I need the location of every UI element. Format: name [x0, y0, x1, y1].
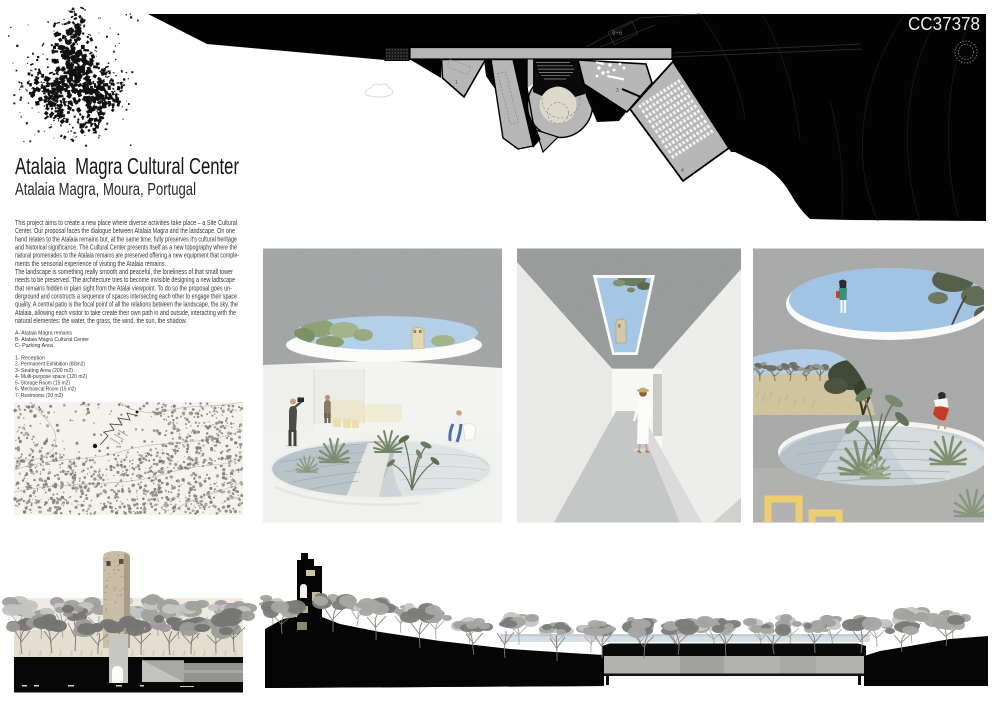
svg-text:2: 2	[501, 132, 504, 138]
svg-text:natural elementes: the water,: natural elementes: the water, the grass,…	[15, 318, 187, 325]
svg-text:Atalaia Magra, Moura, Portugal: Atalaia Magra, Moura, Portugal	[15, 179, 196, 199]
svg-text:that remains hidden in plain s: that remains hidden in plain sight from …	[15, 285, 233, 292]
svg-text:3: 3	[616, 88, 619, 94]
svg-text:6- Mechanical Room (15 m2): 6- Mechanical Room (15 m2)	[15, 387, 76, 393]
svg-text:This project aims to create a: This project aims to create a new place …	[15, 220, 237, 227]
svg-text:The landscape is something rea: The landscape is something really smooth…	[15, 269, 234, 276]
svg-text:ments the sensorial experience: ments the sensorial experience of visiti…	[15, 261, 166, 268]
svg-text:5- Storage Room (15 m2): 5- Storage Room (15 m2)	[15, 381, 70, 387]
svg-text:natural promenades to the Atal: natural promenades to the Atalaia remain…	[15, 253, 240, 260]
svg-text:hand relates to the Atalaia re: hand relates to the Atalaia remains but,…	[15, 236, 237, 243]
svg-text:4- Multi-purpose space (120 m2: 4- Multi-purpose space (120 m2)	[15, 374, 87, 380]
svg-text:1: 1	[455, 80, 458, 86]
svg-text:Atalaia Magra Cultural Center: Atalaia Magra Cultural Center	[15, 153, 239, 179]
svg-text:2- Permanent Exhibition (80m2): 2- Permanent Exhibition (80m2)	[15, 362, 85, 368]
svg-text:Atalaia, allowing each visitor: Atalaia, allowing each visitor to take c…	[15, 310, 236, 317]
svg-text:1- Reception: 1- Reception	[15, 356, 45, 362]
svg-text:quality. A central patio is th: quality. A central patio is the focal po…	[15, 302, 238, 309]
svg-text:and historical significance. T: and historical significance. The Cultura…	[15, 245, 237, 252]
svg-text:A- Atalaia Magra remains: A- Atalaia Magra remains	[15, 331, 72, 337]
svg-text:B- Atalaia Magra Cultural Cent: B- Atalaia Magra Cultural Center	[15, 337, 89, 343]
svg-text:CC37378: CC37378	[908, 13, 980, 34]
svg-text:needs to be preserved. The arc: needs to be preserved. The architecture …	[15, 277, 235, 284]
svg-text:3- Seating Area (200 m2): 3- Seating Area (200 m2)	[15, 368, 73, 374]
svg-text:Center. Our proposal faces the: Center. Our proposal faces the dialogue …	[15, 228, 235, 235]
svg-text:7- Restrooms (20 m2): 7- Restrooms (20 m2)	[15, 393, 63, 399]
svg-text:C- Parking Area: C- Parking Area	[15, 343, 54, 349]
svg-text:4: 4	[681, 168, 684, 174]
svg-text:derground and constructs a seq: derground and constructs a sequence of s…	[15, 294, 237, 301]
svg-text:9+6: 9+6	[612, 31, 623, 37]
